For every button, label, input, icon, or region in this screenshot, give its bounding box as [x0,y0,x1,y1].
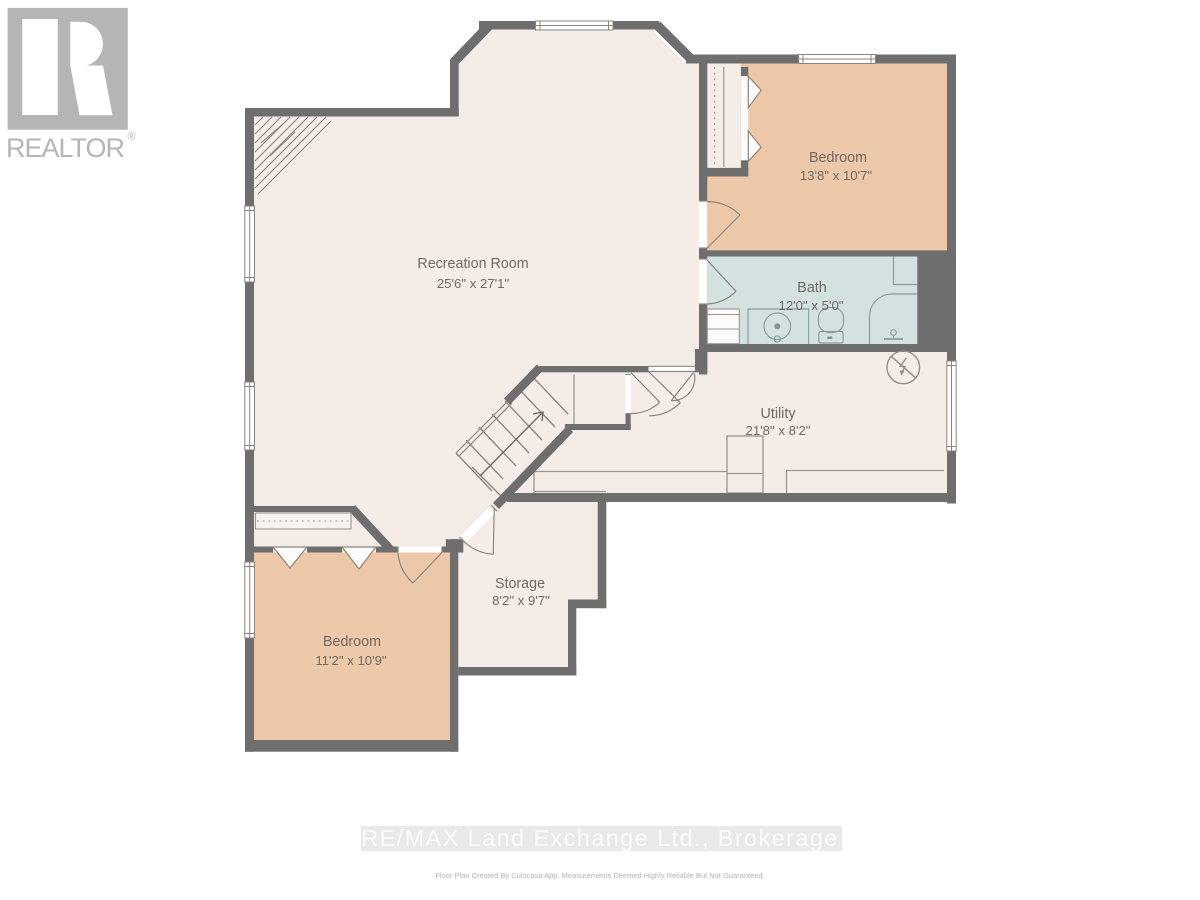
svg-text:13'8" x 10'7": 13'8" x 10'7" [800,168,873,183]
svg-text:®: ® [128,131,136,143]
svg-text:Utility: Utility [761,406,797,422]
svg-text:RE/MAX Land Exchange Ltd., Bro: RE/MAX Land Exchange Ltd., Brokerage [361,825,839,851]
svg-text:REALTOR: REALTOR [6,133,125,163]
svg-text:Storage: Storage [495,576,545,592]
svg-text:12'0" x 5'0": 12'0" x 5'0" [779,298,844,313]
svg-text:8'2" x 9'7": 8'2" x 9'7" [492,593,550,608]
svg-text:25'6" x 27'1": 25'6" x 27'1" [437,276,510,291]
svg-text:Bedroom: Bedroom [323,634,381,650]
svg-text:Floor Plan Created By Cubicasa: Floor Plan Created By Cubicasa App. Meas… [435,871,764,880]
svg-text:Bedroom: Bedroom [809,150,867,166]
svg-text:Recreation Room: Recreation Room [417,256,528,272]
svg-text:Bath: Bath [797,280,826,296]
svg-text:21'8" x 8'2": 21'8" x 8'2" [746,423,811,438]
svg-text:11'2" x 10'9": 11'2" x 10'9" [315,653,387,668]
